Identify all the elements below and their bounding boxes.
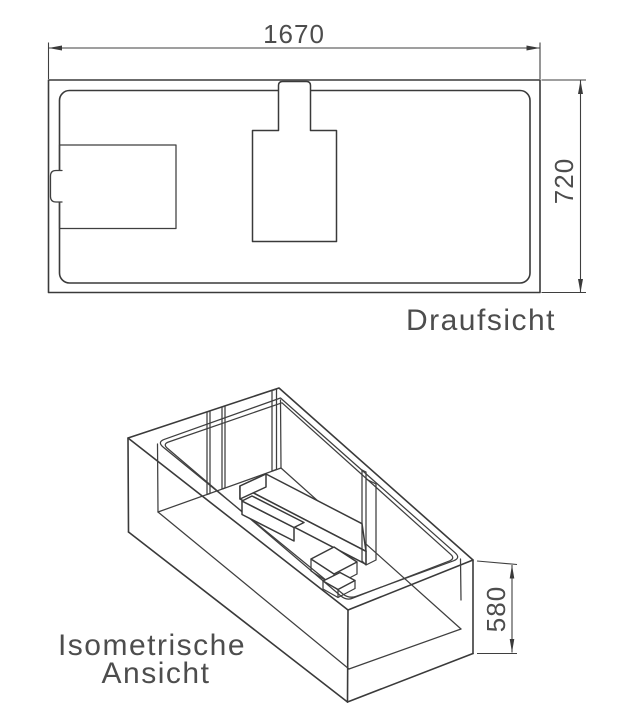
dimension-depth-720: 720 — [542, 80, 587, 293]
arrowhead-bottom — [510, 639, 515, 653]
top-view: 1670 720 Draufsicht — [49, 19, 587, 337]
left-tab-fill — [51, 171, 63, 203]
arrowhead-left — [49, 46, 63, 51]
arrowhead-top — [578, 81, 583, 95]
bottom-right-edge — [348, 654, 474, 703]
extension-line-top — [477, 561, 517, 565]
corner-vertical-right — [461, 559, 462, 600]
corner-vertical-back — [281, 400, 282, 468]
iso-view-label-line2: Ansicht — [102, 657, 211, 690]
dim-height-value: 580 — [481, 586, 511, 632]
floor-front-right-base — [349, 629, 461, 669]
center-cutout — [253, 82, 337, 242]
left-cutout — [60, 145, 177, 229]
drawing-page: 1670 720 Draufsicht — [0, 0, 625, 719]
arrowhead-top — [510, 565, 515, 579]
top-view-label: Draufsicht — [406, 304, 556, 337]
front-vertical-edge — [348, 610, 349, 702]
dimension-width-1670: 1670 — [49, 19, 541, 79]
dimension-height-580: 580 — [477, 561, 517, 654]
left-vertical-edge — [128, 438, 129, 532]
arrowhead-right — [527, 46, 541, 51]
floor-back-right-base — [281, 468, 461, 629]
corner-vertical-left — [158, 444, 159, 512]
dim-depth-value: 720 — [549, 158, 579, 204]
isometric-view: 580 Isometrische Ansicht — [58, 388, 517, 702]
drain-step-2-top — [323, 573, 355, 590]
arrowhead-bottom — [578, 279, 583, 293]
dim-width-value: 1670 — [263, 19, 325, 49]
technical-drawing: 1670 720 Draufsicht — [0, 0, 625, 719]
